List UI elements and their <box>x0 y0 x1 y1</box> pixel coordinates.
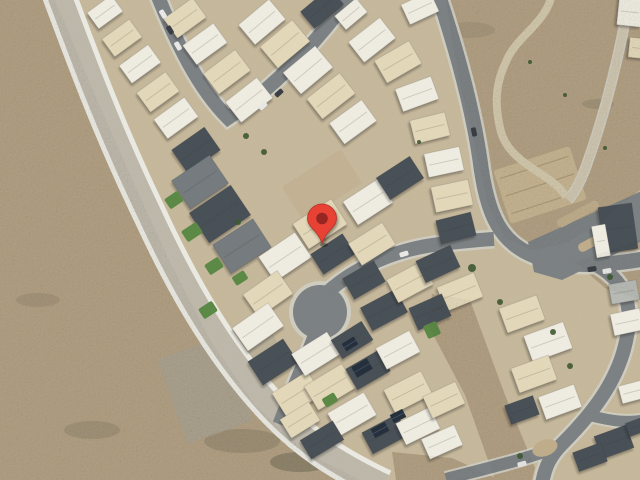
texture-layer <box>0 0 640 480</box>
pin-dot <box>316 213 328 225</box>
map-canvas[interactable] <box>0 0 640 480</box>
satellite-map[interactable] <box>0 0 640 480</box>
pin-ground-shadow <box>320 243 328 247</box>
global-texture <box>0 0 640 480</box>
